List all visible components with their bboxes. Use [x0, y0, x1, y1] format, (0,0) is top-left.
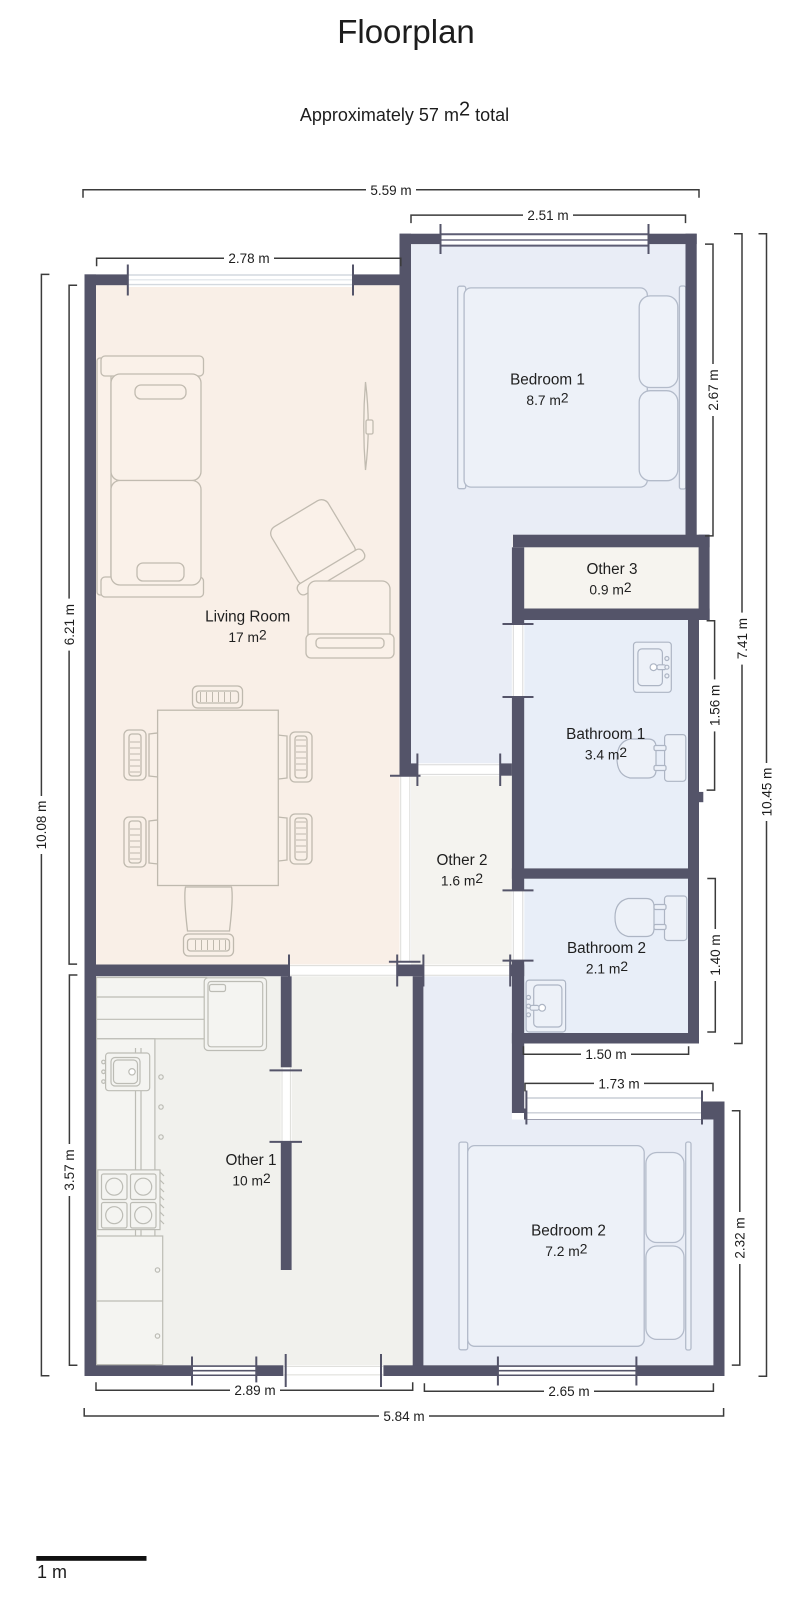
svg-text:5.84 m: 5.84 m: [383, 1409, 424, 1424]
svg-text:Bedroom 2: Bedroom 2: [531, 1223, 606, 1240]
svg-text:10 m2: 10 m2: [232, 1171, 270, 1189]
svg-text:1.40 m: 1.40 m: [708, 934, 723, 975]
svg-text:2.67 m: 2.67 m: [706, 369, 721, 410]
svg-text:Bathroom 1: Bathroom 1: [566, 726, 645, 743]
svg-text:1.6 m2: 1.6 m2: [441, 871, 483, 889]
svg-text:Bedroom 1: Bedroom 1: [510, 372, 585, 389]
svg-text:0.9 m2: 0.9 m2: [589, 580, 631, 598]
svg-text:1.50 m: 1.50 m: [585, 1047, 626, 1062]
svg-text:1.56 m: 1.56 m: [707, 685, 722, 726]
svg-text:Bathroom 2: Bathroom 2: [567, 940, 646, 957]
svg-text:2.78 m: 2.78 m: [228, 251, 269, 266]
svg-text:1.73 m: 1.73 m: [598, 1076, 639, 1091]
svg-text:17 m2: 17 m2: [228, 627, 266, 645]
svg-text:6.21 m: 6.21 m: [62, 604, 77, 645]
svg-text:2.32 m: 2.32 m: [733, 1217, 748, 1258]
svg-text:2.1 m2: 2.1 m2: [586, 959, 628, 977]
svg-text:2.51 m: 2.51 m: [527, 208, 568, 223]
svg-text:Other 2: Other 2: [436, 852, 487, 869]
svg-text:Other 1: Other 1: [225, 1152, 276, 1169]
svg-text:10.08 m: 10.08 m: [34, 801, 49, 850]
svg-text:3.57 m: 3.57 m: [62, 1149, 77, 1190]
svg-text:1 m: 1 m: [37, 1562, 67, 1582]
svg-text:10.45 m: 10.45 m: [759, 768, 774, 817]
svg-text:2.65 m: 2.65 m: [548, 1384, 589, 1399]
svg-text:Living Room: Living Room: [205, 609, 290, 626]
svg-text:Floorplan: Floorplan: [337, 13, 475, 50]
svg-text:7.2 m2: 7.2 m2: [545, 1242, 587, 1260]
svg-text:Other 3: Other 3: [586, 561, 637, 578]
svg-text:3.4 m2: 3.4 m2: [585, 745, 627, 763]
svg-text:5.59 m: 5.59 m: [370, 183, 411, 198]
svg-text:8.7 m2: 8.7 m2: [526, 390, 568, 408]
svg-text:7.41 m: 7.41 m: [735, 618, 750, 659]
svg-text:2.89 m: 2.89 m: [234, 1383, 275, 1398]
